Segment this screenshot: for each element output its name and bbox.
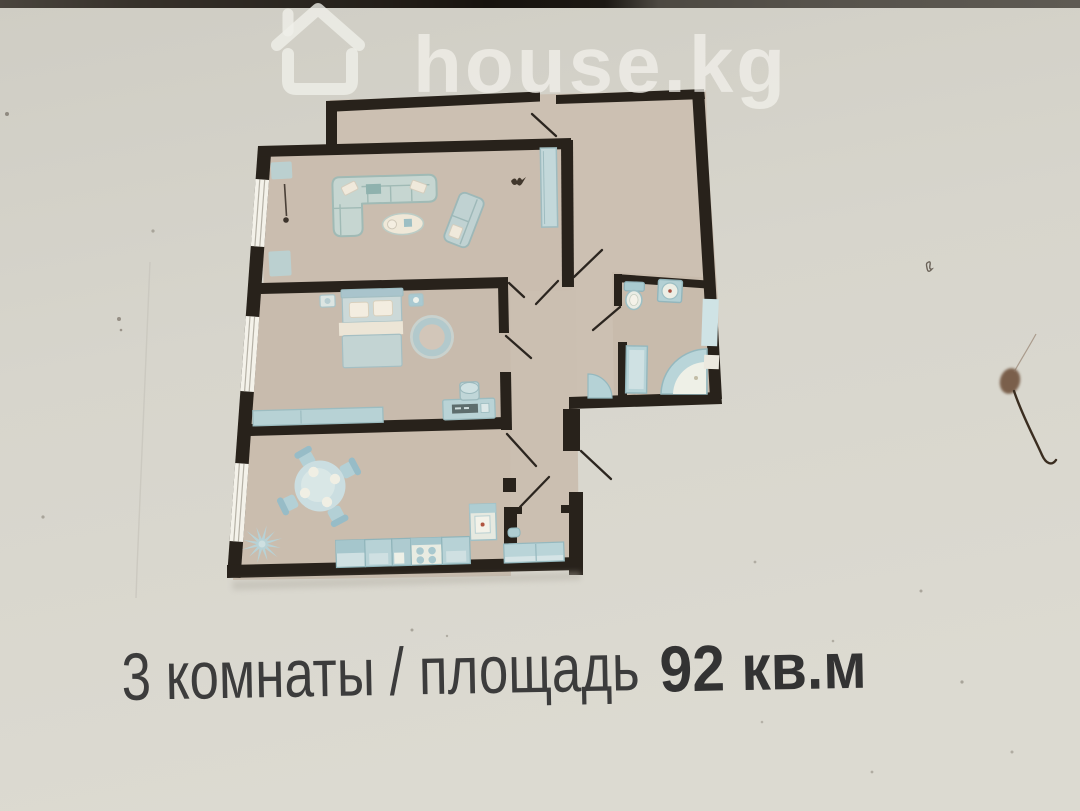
svg-text:house.kg: house.kg bbox=[413, 20, 788, 109]
svg-text:3 комнаты / площадь: 3 комнаты / площадь bbox=[121, 630, 640, 715]
svg-text:92 кв.м: 92 кв.м bbox=[659, 629, 867, 706]
